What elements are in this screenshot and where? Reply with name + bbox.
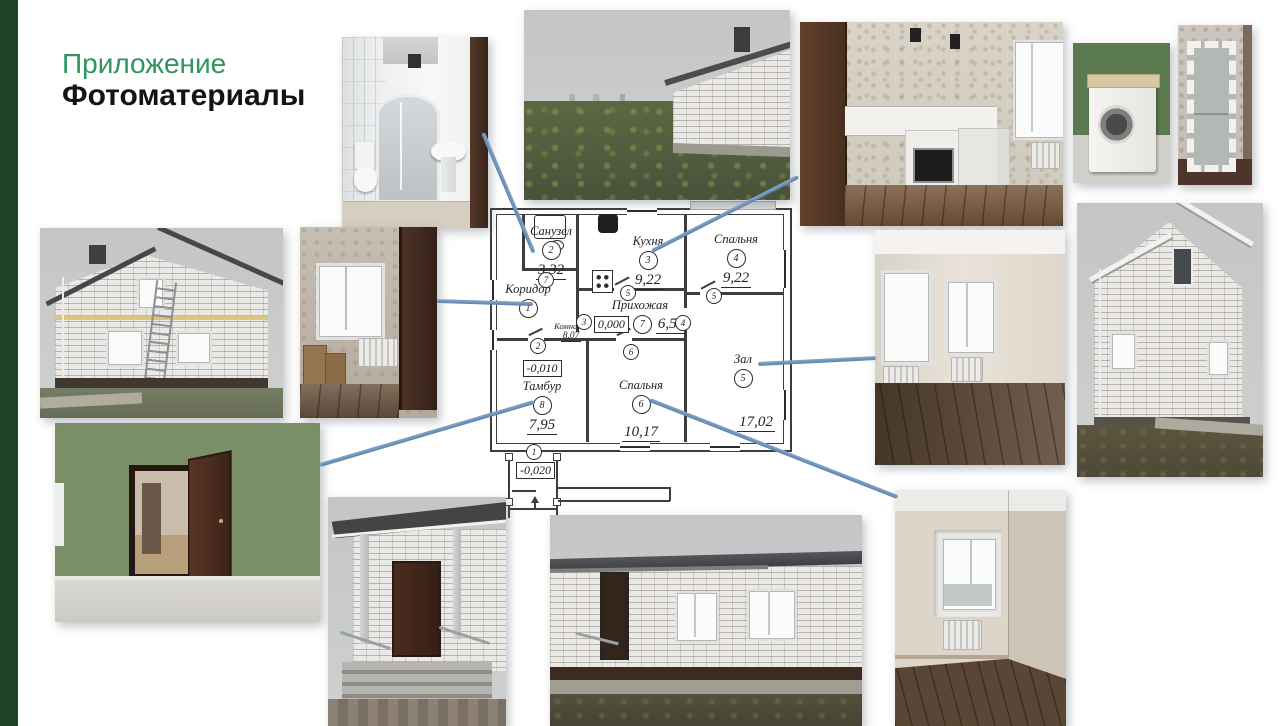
front-ground: [550, 694, 862, 726]
photo-bathroom: [342, 37, 488, 228]
plan-room-tambur: -0,010 Тамбур 8 7,95: [506, 360, 578, 435]
green-window-sliver: [55, 483, 64, 547]
bathroom-floor: [342, 201, 470, 228]
front-plinth: [550, 667, 862, 680]
green-door-handle: [219, 519, 223, 523]
title-line2: Фотоматериалы: [62, 79, 305, 113]
fridge-door-split: [1194, 113, 1228, 115]
door-tag-3: 3: [576, 314, 592, 330]
porch-landing-end: [669, 487, 671, 501]
sink-pedestal: [441, 157, 456, 191]
kitchen-oven-door: [913, 148, 954, 183]
living-window-right-mullion: [966, 282, 968, 348]
washer-cardboard-top: [1087, 74, 1161, 89]
door-tag-1: 1: [526, 444, 542, 460]
fridge-foam-pack: [1187, 41, 1236, 172]
front-door: [600, 572, 629, 660]
wall-v3: [586, 341, 589, 442]
room-name: Санузел: [530, 224, 572, 239]
corridor-window: [316, 263, 385, 340]
porch-post-tl: [505, 453, 513, 461]
gable-window-1: [1110, 332, 1136, 372]
gable-attic-window: [1172, 247, 1193, 287]
front-apron: [550, 680, 862, 695]
porch-door: [392, 561, 441, 657]
window-mark-top: [627, 207, 657, 215]
photo-house-ladder: [40, 228, 283, 418]
room-area: 17,02: [737, 414, 775, 432]
corridor-radiator: [358, 338, 398, 367]
kitchen-door: [800, 22, 847, 226]
room-number: 5: [734, 369, 753, 388]
photo-green-room: [55, 423, 320, 622]
porch-landing-line-2: [558, 500, 670, 502]
plan-room-bedroom6: Спальня 6 10,17: [602, 378, 680, 442]
gable-window-2: [1207, 340, 1230, 377]
title-line1: Приложение: [62, 48, 305, 79]
corridor-floor: [300, 384, 399, 418]
photo-kitchen: [800, 22, 1063, 226]
room-number: 8: [533, 396, 552, 415]
ceiling-vent-box: [408, 54, 421, 67]
kitchen-vent-1: [910, 28, 921, 42]
toilet-tank: [355, 142, 374, 169]
slide-title: Приложение Фотоматериалы: [62, 48, 305, 113]
ladder-plinth: [55, 378, 269, 388]
porch-path: [328, 699, 506, 726]
photo-gable-house: [1077, 203, 1263, 477]
photo-living-room: [875, 230, 1065, 465]
room-name: Спальня: [714, 232, 758, 247]
toilet-bowl: [354, 167, 377, 192]
porch-steps: [342, 662, 492, 699]
door-gap-bedroom6: [616, 337, 632, 342]
plan-room-bedroom4: Спальня 4 9,22: [694, 232, 778, 288]
level-mark: 0,000: [594, 316, 629, 333]
photo-house-front: [550, 515, 862, 726]
bedroom-ceiling: [895, 490, 1066, 511]
porch-post-right: [453, 529, 462, 639]
porch-post-tr: [553, 453, 561, 461]
photo-porch: [328, 497, 506, 726]
room-number: 2: [542, 241, 561, 260]
bedroom-window-view: [944, 584, 992, 605]
slide: Приложение Фотоматериалы: [0, 0, 1280, 726]
front-window-1-mullion: [694, 593, 696, 637]
photo-washer: [1073, 43, 1170, 183]
ladder-window-2: [176, 331, 212, 365]
gable-downpipe: [1099, 269, 1101, 422]
ladder-window-1: [106, 329, 144, 367]
room-number: 3: [639, 251, 658, 270]
kitchen-window: [1013, 40, 1063, 140]
street-house-chimney: [734, 27, 750, 52]
left-green-bar: [0, 0, 18, 726]
hallway-level-row: 0,000 7 6,53: [594, 315, 686, 334]
fridge-symbol: [598, 214, 618, 233]
front-window-2: [747, 589, 798, 642]
window-mark-bottom-2: [710, 443, 740, 451]
room-number: 7: [633, 315, 652, 334]
porch-step-1: [512, 490, 536, 492]
photo-street-view: [524, 10, 790, 200]
living-window-right: [945, 279, 997, 356]
plan-room-kitchen: Кухня 3 9,22: [606, 234, 690, 290]
window-mark-left-1: [489, 280, 497, 300]
room-number: 4: [727, 249, 746, 268]
room-area: 9,22: [633, 272, 663, 290]
room-name: Прихожая: [612, 298, 668, 313]
plan-room-hallway: Прихожая 0,000 7 6,53: [592, 298, 688, 334]
window-mark-right-1: [781, 250, 789, 288]
room-area: 8,07: [561, 331, 582, 342]
kitchen-floor: [845, 185, 1063, 226]
corridor-cabinet-1: [303, 345, 327, 385]
kitchen-radiator: [1031, 142, 1059, 168]
room-area: 7,95: [527, 417, 557, 435]
corridor-cabinet-2: [325, 353, 346, 387]
room-area: 10,17: [622, 424, 660, 442]
green-floor: [55, 580, 320, 622]
front-window-2-mullion: [768, 591, 770, 635]
level-mark: -0,010: [523, 360, 562, 377]
wall-h1-right: [684, 292, 784, 295]
living-floor: [875, 383, 1065, 465]
porch-landing-line-1: [558, 487, 670, 489]
photo-small-bedroom: [895, 490, 1066, 726]
room-name: Тамбур: [523, 379, 561, 394]
corridor-door: [399, 227, 437, 410]
porch-post-left: [360, 534, 369, 644]
window-mark-left-2: [489, 330, 497, 350]
photo-corridor-room: [300, 227, 437, 418]
photo-fridge: [1178, 25, 1252, 185]
room-area: 9,22: [721, 270, 751, 288]
kitchen-vent-2: [950, 34, 961, 48]
bedroom-radiator: [943, 620, 983, 650]
bedroom-baseboard: [895, 655, 1008, 659]
door-tag-4: 4: [675, 315, 691, 331]
door-tag-6: 6: [623, 344, 639, 360]
kitchen-counter: [958, 128, 1010, 187]
green-doorway-inner-door: [142, 483, 161, 555]
living-radiator-right: [951, 357, 983, 383]
front-window-1: [675, 591, 720, 644]
stair-arrow-stem: [534, 500, 536, 508]
porch-post-bl: [505, 498, 513, 506]
level-mark-porch: -0,020: [516, 462, 555, 479]
room-number: 6: [632, 395, 651, 414]
door-tag-7: 7: [538, 272, 554, 288]
window-mark-bottom-1: [620, 443, 650, 451]
corridor-window-mullion: [345, 267, 347, 330]
ladder-downpipe: [62, 277, 64, 380]
door-tag-5b: 5: [706, 288, 722, 304]
shower-glass-seam: [400, 102, 402, 190]
window-mark-right-2: [781, 390, 789, 420]
porch-step-2: [508, 508, 558, 510]
door-tag-5a: 5: [620, 285, 636, 301]
door-tag-2: 2: [530, 338, 546, 354]
room-name: Зал: [734, 352, 752, 367]
living-window-left: [881, 270, 933, 365]
room-name: Спальня: [619, 378, 663, 393]
ladder-chimney: [89, 245, 106, 264]
kitchen-window-mullion: [1031, 42, 1033, 132]
plan-room-corridor: Коридор 1: [494, 282, 562, 318]
washer-door-ring: [1098, 105, 1135, 144]
